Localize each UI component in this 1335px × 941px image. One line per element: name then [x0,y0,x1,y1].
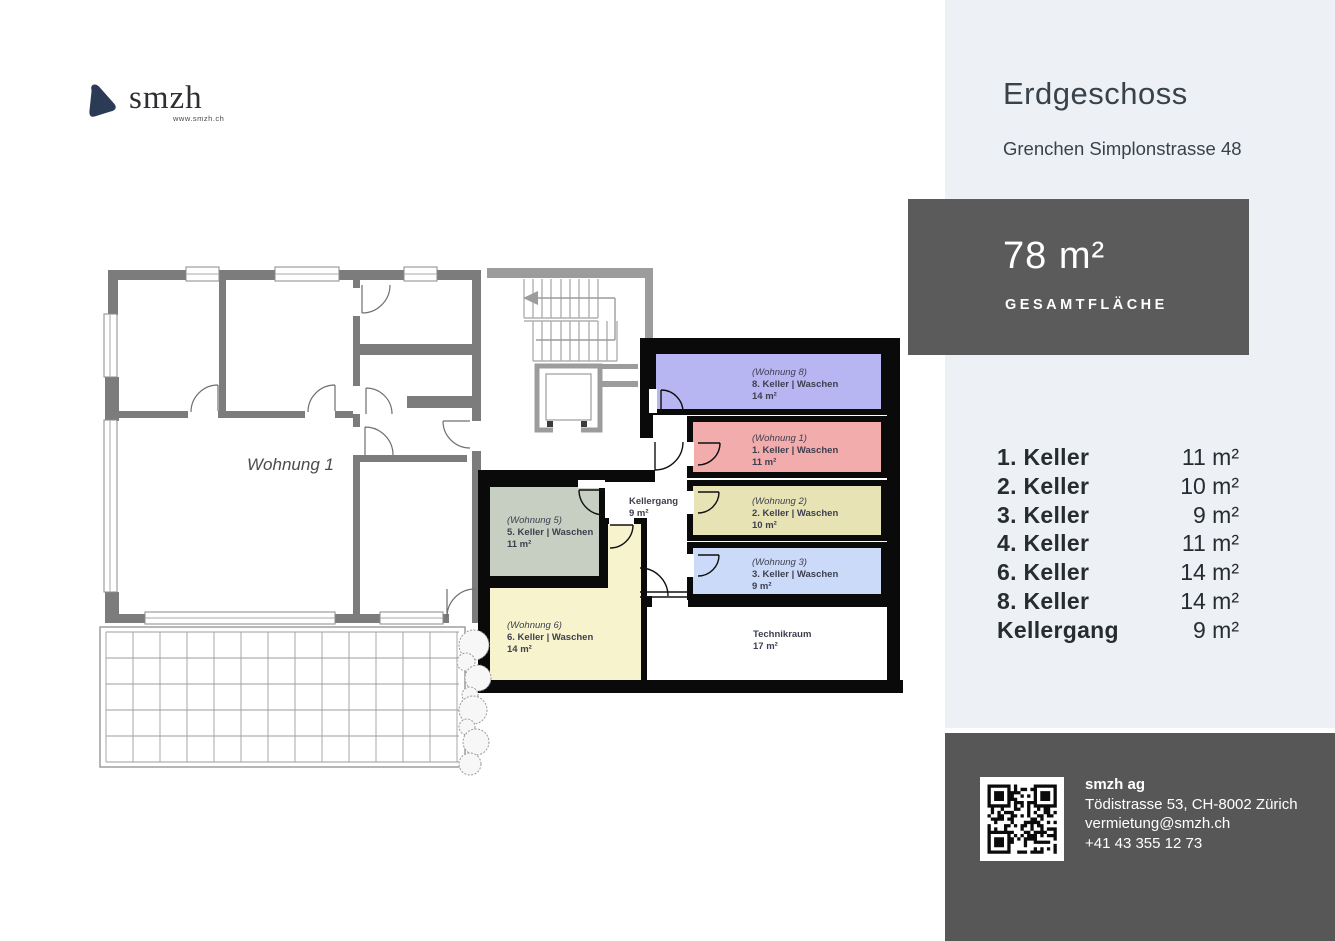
room-area: 14 m² [1180,587,1239,616]
room-label: Kellergang [997,616,1119,645]
elevator [537,366,600,433]
svg-text:1. Keller | Waschen: 1. Keller | Waschen [752,445,838,456]
room-list-row: 2. Keller 10 m² [997,472,1239,501]
svg-text:(Wohnung 6): (Wohnung 6) [507,620,562,631]
svg-text:17 m²: 17 m² [753,641,778,652]
staircase [487,268,653,433]
svg-text:10 m²: 10 m² [752,520,777,531]
svg-text:(Wohnung 1): (Wohnung 1) [752,433,807,444]
room-list-row: Kellergang 9 m² [997,616,1239,645]
brand-website: www.smzh.ch [173,114,224,123]
company-email: vermietung@smzh.ch [1085,814,1298,834]
stair-direction-arrow [536,298,615,340]
svg-text:3. Keller | Waschen: 3. Keller | Waschen [752,569,838,580]
contact-block: smzh ag Tödistrasse 53, CH-8002 Zürich v… [1085,775,1298,853]
apartment-doors [191,285,475,617]
svg-text:11 m²: 11 m² [507,539,531,550]
svg-text:(Wohnung 8): (Wohnung 8) [752,367,807,378]
apartment-windows [104,267,443,624]
contact-footer: smzh ag Tödistrasse 53, CH-8002 Zürich v… [945,733,1335,941]
room-label: 3. Keller [997,501,1089,530]
room-list-row: 8. Keller 14 m² [997,587,1239,616]
apartment-label: Wohnung 1 [247,455,334,474]
room-label: 8. Keller [997,587,1089,616]
svg-text:8. Keller | Waschen: 8. Keller | Waschen [752,379,838,390]
room-list-row: 4. Keller 11 m² [997,529,1239,558]
smzh-logo-icon [85,82,121,120]
corridor-label: Kellergang 9 m² [629,496,678,519]
room-area: 11 m² [1182,529,1239,558]
room-area: 9 m² [1193,616,1239,645]
apartment-walls [105,270,481,623]
page-title: Erdgeschoss [1003,76,1188,112]
svg-text:(Wohnung 5): (Wohnung 5) [507,515,562,526]
room-label: 1. Keller [997,443,1089,472]
svg-text:11 m²: 11 m² [752,457,776,468]
svg-text:Technikraum: Technikraum [753,629,811,640]
stair-arrow-head [523,291,538,305]
room-list-row: 3. Keller 9 m² [997,501,1239,530]
svg-text:14 m²: 14 m² [507,644,532,655]
brand-logo: smzh www.smzh.ch [85,80,245,135]
company-name: smzh ag [1085,775,1298,795]
floor-plan: Wohnung 1 (Wohnung 8) 8. Keller | Wasche… [0,0,945,941]
svg-text:(Wohnung 3): (Wohnung 3) [752,557,807,568]
svg-text:9 m²: 9 m² [752,581,772,592]
room-list-row: 1. Keller 11 m² [997,443,1239,472]
svg-text:5. Keller | Waschen: 5. Keller | Waschen [507,527,593,538]
svg-text:(Wohnung 2): (Wohnung 2) [752,496,807,507]
room-area: 9 m² [1193,501,1239,530]
svg-text:2. Keller | Waschen: 2. Keller | Waschen [752,508,838,519]
qr-code-icon [980,777,1064,861]
total-area-label: GESAMTFLÄCHE [1005,297,1168,313]
address-subtitle: Grenchen Simplonstrasse 48 [1003,138,1242,160]
terrace [100,627,465,767]
svg-text:Kellergang: Kellergang [629,496,678,507]
svg-text:9 m²: 9 m² [629,508,649,519]
room-area: 11 m² [1182,443,1239,472]
room-area: 14 m² [1180,558,1239,587]
company-address: Tödistrasse 53, CH-8002 Zürich [1085,795,1298,815]
room-label: 6. Keller [997,558,1089,587]
room-list-row: 6. Keller 14 m² [997,558,1239,587]
room-label: 4. Keller [997,529,1089,558]
svg-text:6. Keller | Waschen: 6. Keller | Waschen [507,632,593,643]
technik-label: Technikraum 17 m² [753,629,811,652]
room-list: 1. Keller 11 m² 2. Keller 10 m² 3. Kelle… [997,443,1239,645]
room-area: 10 m² [1180,472,1239,501]
brand-wordmark: smzh [129,80,203,117]
company-phone: +41 43 355 12 73 [1085,834,1298,854]
room-label: 2. Keller [997,472,1089,501]
bushes [457,630,491,775]
svg-text:14 m²: 14 m² [752,391,777,402]
qr-code [980,777,1064,861]
total-area-value: 78 m² [1003,235,1105,278]
total-area-panel: 78 m² GESAMTFLÄCHE [908,199,1249,355]
